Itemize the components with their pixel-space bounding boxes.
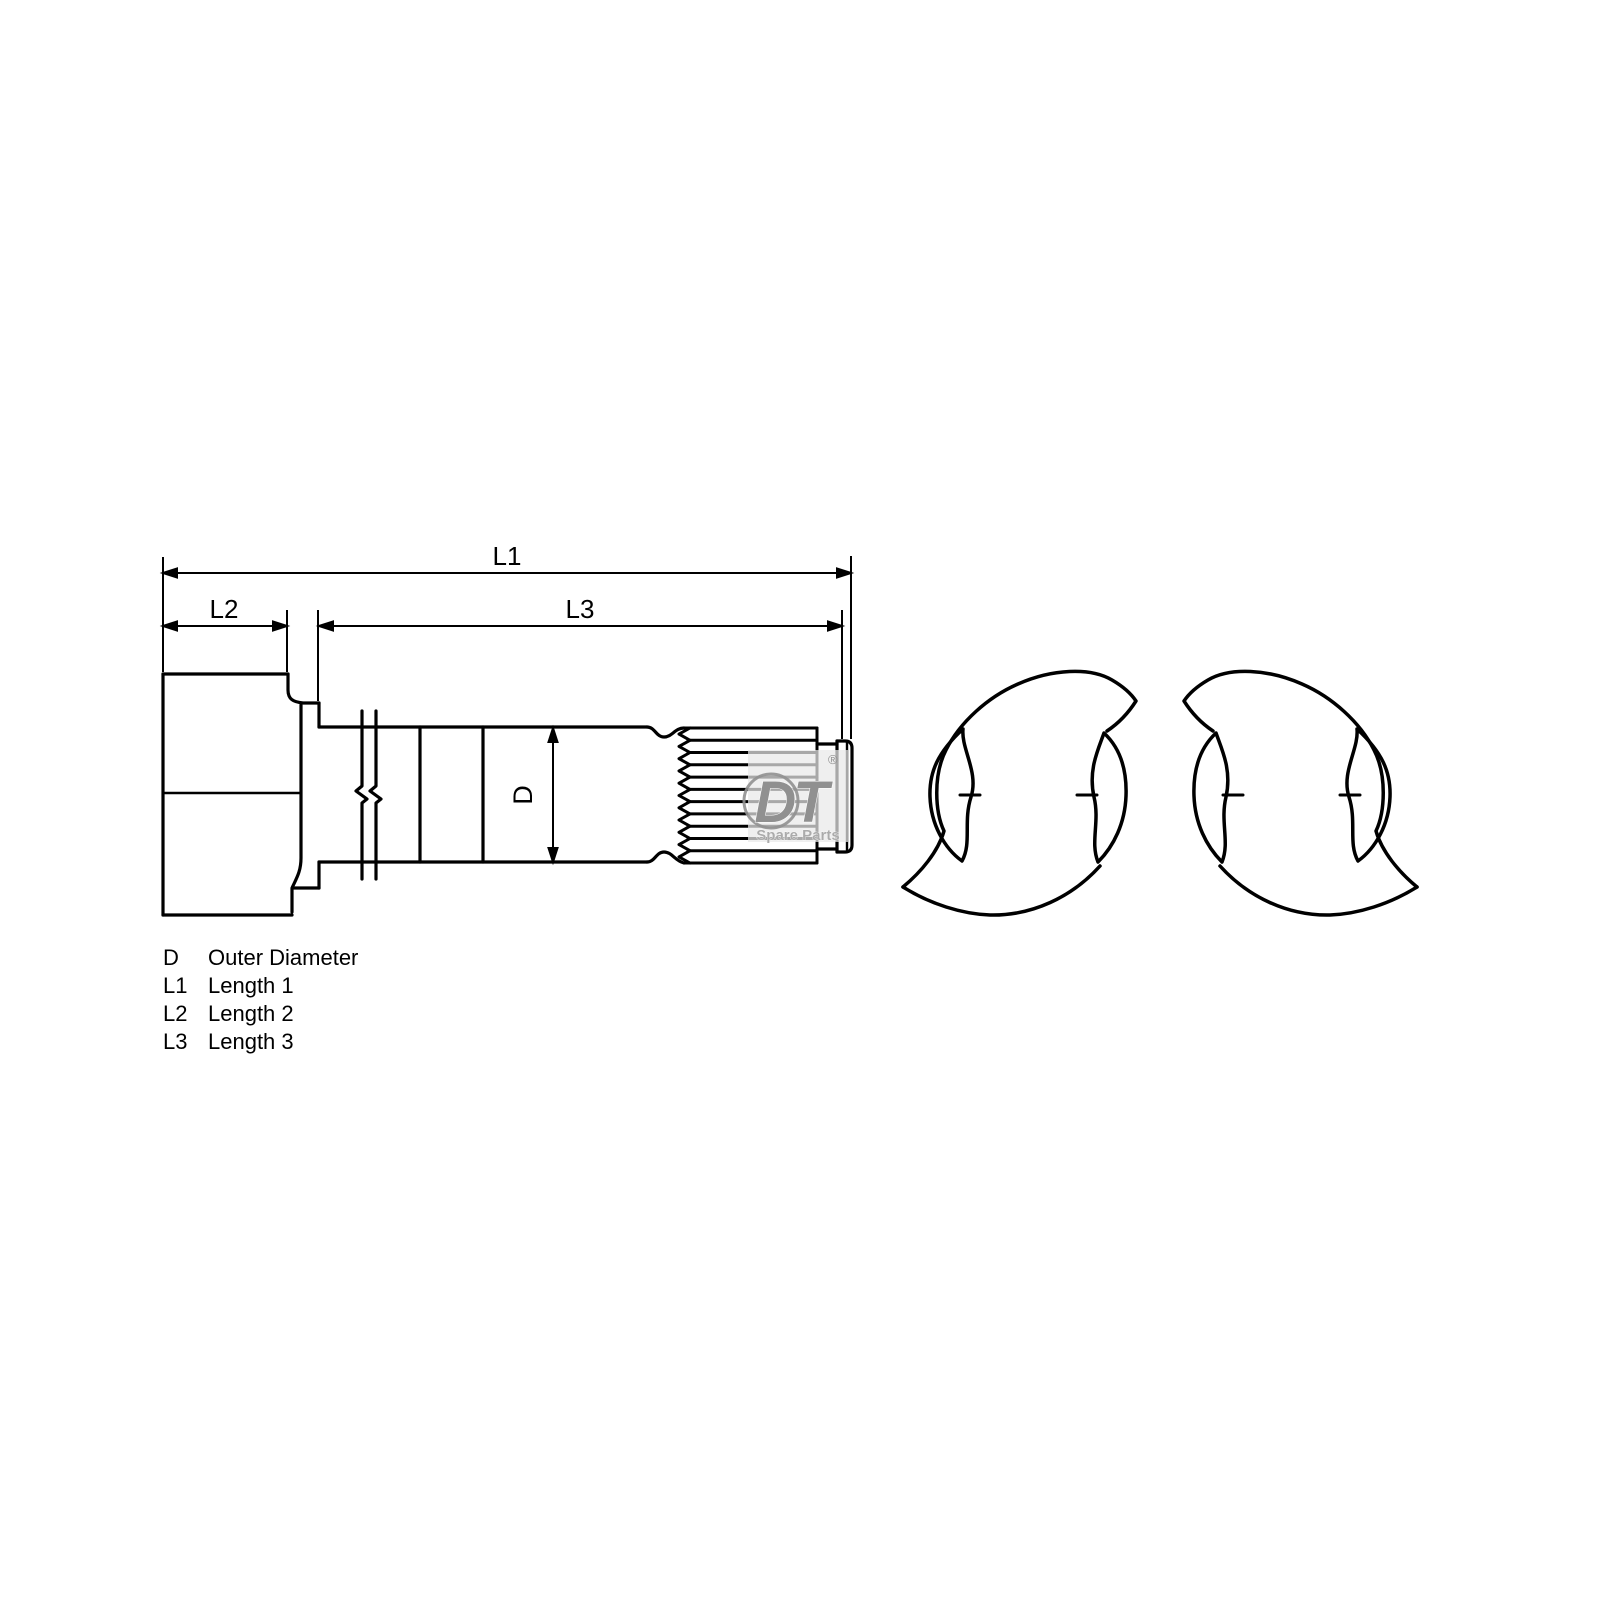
legend-symbol: L1 (163, 972, 208, 1000)
legend-symbol: L3 (163, 1028, 208, 1056)
break-line (356, 711, 367, 879)
label-l2: L2 (210, 594, 239, 624)
flange (163, 674, 319, 915)
legend-row: D Outer Diameter (163, 944, 358, 972)
legend-row: L2 Length 2 (163, 1000, 358, 1028)
legend: D Outer Diameter L1 Length 1 L2 Length 2… (163, 944, 358, 1056)
legend-description: Length 3 (208, 1028, 294, 1056)
registered-trademark-icon: ® (828, 752, 838, 767)
dt-watermark: DT ® Spare Parts (744, 750, 848, 844)
label-l1: L1 (493, 541, 522, 571)
dt-logo: DT (754, 770, 833, 835)
legend-row: L3 Length 3 (163, 1028, 358, 1056)
watermark-tagline: Spare Parts (756, 827, 839, 844)
cam-profile-left (903, 671, 1136, 915)
legend-description: Length 2 (208, 1000, 294, 1028)
cam-profile-right (1184, 671, 1417, 915)
legend-symbol: D (163, 944, 208, 972)
legend-symbol: L2 (163, 1000, 208, 1028)
shaft-technical-drawing: L1 L2 L3 D DT ® Spare Parts (0, 0, 1600, 1600)
shaft-cylinder (319, 711, 684, 879)
break-line (370, 711, 381, 879)
technical-drawing-page: L1 L2 L3 D DT ® Spare Parts D Outer Diam… (0, 0, 1600, 1600)
legend-row: L1 Length 1 (163, 972, 358, 1000)
legend-description: Length 1 (208, 972, 294, 1000)
label-l3: L3 (566, 594, 595, 624)
label-d: D (508, 785, 538, 805)
dimension-d (549, 728, 558, 862)
legend-description: Outer Diameter (208, 944, 358, 972)
